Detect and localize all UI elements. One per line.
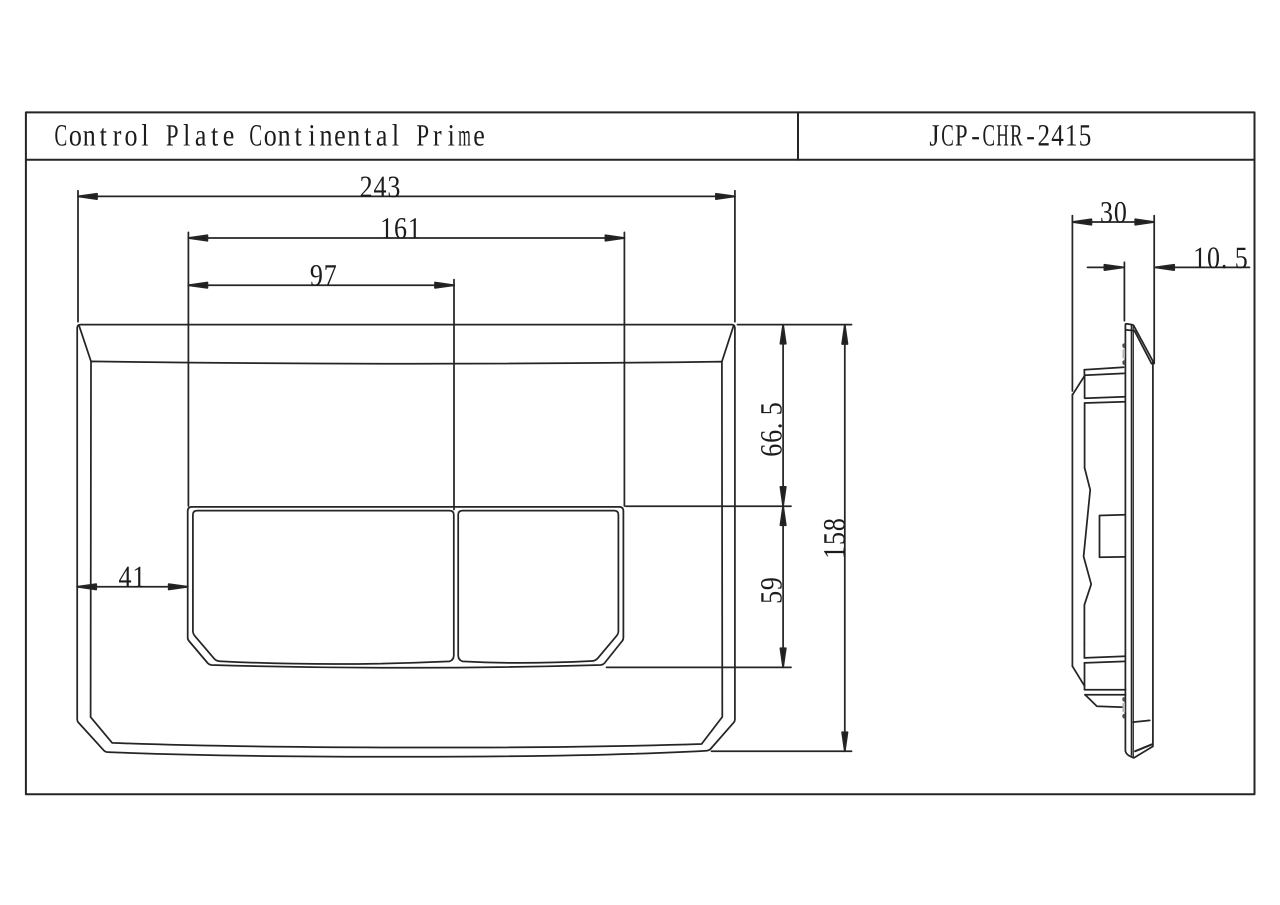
- svg-text:C: C: [55, 118, 68, 153]
- svg-text:H: H: [996, 118, 1009, 153]
- svg-text:C: C: [941, 118, 954, 153]
- svg-text:C: C: [983, 118, 996, 153]
- svg-text:i: i: [448, 118, 455, 153]
- svg-text:e: e: [223, 118, 235, 153]
- svg-text:a: a: [195, 118, 207, 153]
- svg-text:l: l: [141, 118, 148, 153]
- svg-text:-: -: [971, 118, 980, 153]
- svg-text:e: e: [334, 118, 346, 153]
- svg-text:n: n: [347, 118, 360, 153]
- svg-text:r: r: [433, 118, 442, 153]
- svg-text:2: 2: [1038, 118, 1051, 153]
- svg-text:n: n: [83, 118, 96, 153]
- svg-text:t: t: [100, 118, 108, 153]
- svg-text:a: a: [376, 118, 388, 153]
- svg-text:J: J: [929, 118, 939, 153]
- svg-text:41: 41: [118, 560, 145, 595]
- svg-text:5: 5: [1079, 118, 1092, 153]
- svg-text:t: t: [211, 118, 219, 153]
- svg-text:P: P: [166, 118, 179, 153]
- svg-text:59: 59: [754, 577, 789, 604]
- svg-text:o: o: [125, 118, 138, 153]
- svg-text:C: C: [249, 118, 262, 153]
- svg-text:1: 1: [1065, 118, 1078, 153]
- svg-text:t: t: [364, 118, 372, 153]
- svg-text:l: l: [183, 118, 190, 153]
- svg-text:P: P: [416, 118, 429, 153]
- svg-text:m: m: [458, 118, 471, 153]
- svg-text:n: n: [278, 118, 291, 153]
- svg-text:66.5: 66.5: [754, 402, 789, 457]
- svg-text:97: 97: [310, 258, 337, 293]
- svg-text:158: 158: [817, 518, 852, 559]
- svg-text:t: t: [294, 118, 302, 153]
- svg-text:R: R: [1010, 118, 1023, 153]
- svg-text:-: -: [1026, 118, 1035, 153]
- svg-text:o: o: [69, 118, 82, 153]
- svg-text:30: 30: [1100, 195, 1127, 230]
- svg-text:r: r: [113, 118, 122, 153]
- svg-text:243: 243: [360, 169, 401, 204]
- svg-text:n: n: [319, 118, 332, 153]
- svg-text:e: e: [473, 118, 485, 153]
- svg-text:i: i: [308, 118, 315, 153]
- svg-text:P: P: [955, 118, 968, 153]
- svg-text:10.5: 10.5: [1193, 240, 1248, 275]
- svg-text:l: l: [392, 118, 399, 153]
- svg-text:4: 4: [1051, 118, 1064, 153]
- svg-text:161: 161: [380, 211, 421, 246]
- svg-text:o: o: [264, 118, 277, 153]
